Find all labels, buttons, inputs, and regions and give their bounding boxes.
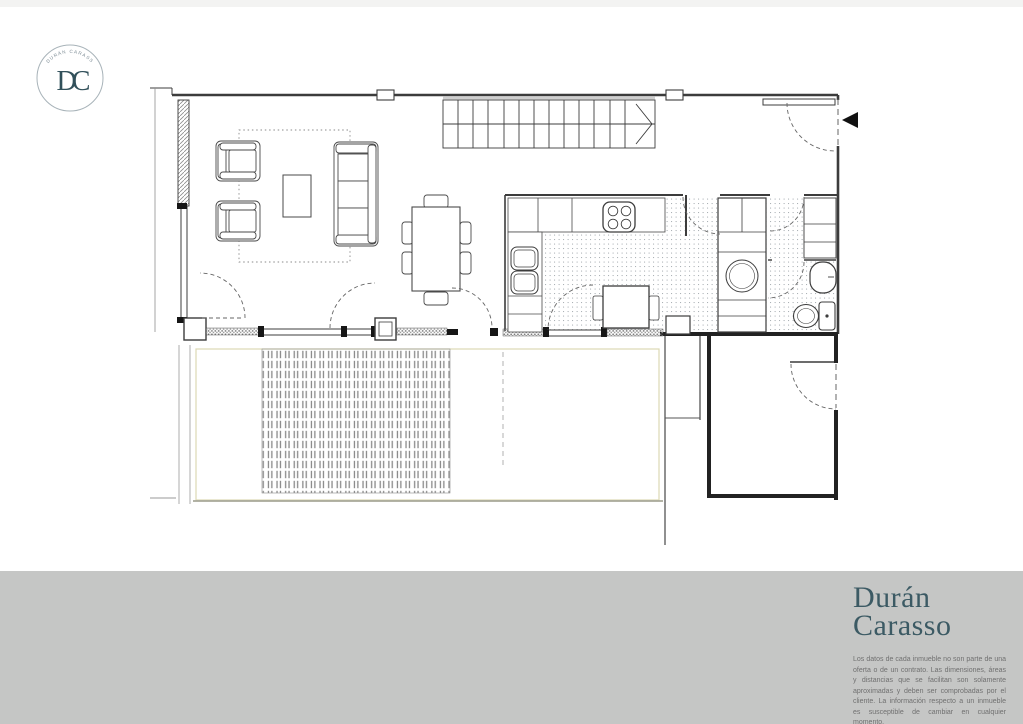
coffee-table — [283, 175, 311, 217]
armchair-2 — [216, 201, 260, 241]
sofa — [334, 142, 378, 246]
floor-plan-canvas — [0, 0, 1023, 571]
footer-content: Durán Carasso Los datos de cada inmueble… — [853, 584, 1011, 724]
staircase — [443, 100, 655, 148]
page: DURÁN CARASSO DC — [0, 0, 1023, 724]
closet-cells — [804, 198, 836, 258]
legal-disclaimer: Los datos de cada inmueble no son parte … — [853, 655, 1006, 724]
entrance-door — [763, 99, 858, 151]
terrace — [150, 336, 700, 545]
neighbor-room — [707, 334, 836, 500]
bathroom-sink-icon — [810, 262, 836, 293]
brand-wordmark: Durán Carasso — [853, 584, 1011, 640]
entrance-arrow-icon — [842, 112, 858, 128]
appliance-column — [718, 198, 766, 332]
wordmark-line2: Carasso — [853, 612, 1011, 640]
footer-band: Durán Carasso Los datos de cada inmueble… — [0, 571, 1023, 724]
armchair-1 — [216, 141, 260, 181]
cooktop-icon — [603, 202, 635, 232]
wordmark-line1: Durán — [853, 584, 1011, 612]
breakfast-table — [593, 286, 659, 328]
terrace-deck — [262, 349, 450, 493]
column — [666, 316, 690, 334]
